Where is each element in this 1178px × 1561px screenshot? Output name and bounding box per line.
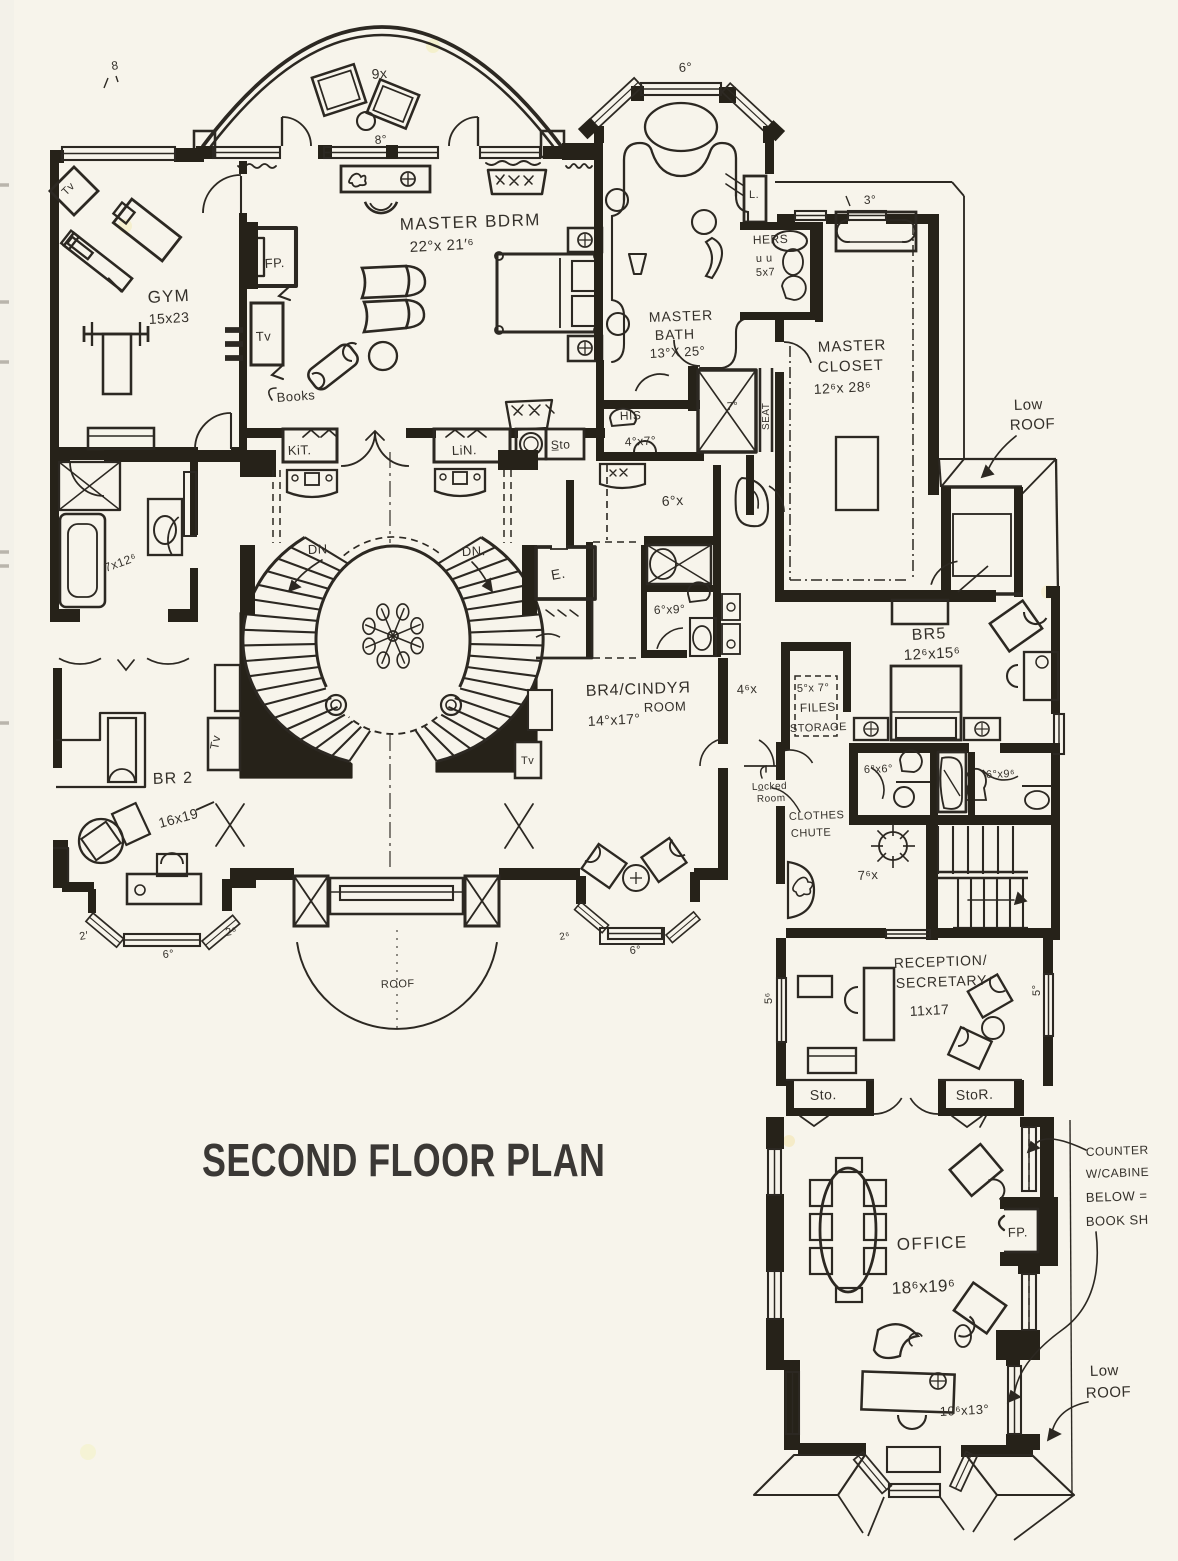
svg-text:FP.: FP. [264, 255, 285, 271]
svg-text:2⁶: 2⁶ [559, 930, 571, 943]
svg-text:u u: u u [756, 252, 773, 265]
svg-text:FILES: FILES [800, 700, 836, 715]
svg-text:L.: L. [749, 189, 759, 201]
svg-text:5x7: 5x7 [756, 266, 776, 279]
svg-text:KiT.: KiT. [288, 442, 312, 458]
svg-text:Low: Low [1014, 396, 1044, 414]
svg-text:6°x: 6°x [661, 492, 684, 509]
svg-text:Low: Low [1090, 1362, 1120, 1380]
svg-text:Tv: Tv [207, 734, 223, 751]
svg-text:2⁶: 2⁶ [224, 925, 238, 939]
svg-text:15x23: 15x23 [148, 309, 189, 327]
svg-text:DN.: DN. [462, 543, 486, 559]
svg-text:BR5: BR5 [911, 625, 947, 644]
svg-text:12⁶x15⁶: 12⁶x15⁶ [903, 644, 961, 664]
svg-text:GYM: GYM [147, 286, 190, 307]
svg-text:HERS: HERS [753, 232, 789, 247]
svg-text:10⁶x13°: 10⁶x13° [939, 1401, 989, 1419]
svg-text:MASTER: MASTER [818, 337, 887, 356]
svg-text:W/CABINE: W/CABINE [1086, 1165, 1150, 1181]
svg-text:BR 2: BR 2 [153, 770, 194, 788]
svg-text:OFFICE: OFFICE [896, 1233, 967, 1254]
svg-text:4⁶x: 4⁶x [736, 681, 757, 697]
svg-text:7°: 7° [727, 400, 739, 413]
svg-text:22°x 21′⁶: 22°x 21′⁶ [409, 236, 474, 256]
svg-text:LiN.: LiN. [452, 442, 478, 458]
svg-text:BATH: BATH [655, 326, 696, 343]
svg-text:CHUTE: CHUTE [791, 827, 832, 840]
svg-text:Sto.: Sto. [810, 1086, 837, 1103]
svg-text:6°: 6° [678, 59, 692, 75]
svg-text:BOOK SH: BOOK SH [1086, 1212, 1149, 1229]
svg-text:6°: 6° [629, 944, 642, 957]
svg-text:RECEPTION/: RECEPTION/ [894, 952, 988, 971]
svg-text:9x: 9x [371, 65, 388, 82]
svg-text:5°x 7°: 5°x 7° [797, 682, 830, 695]
svg-text:CLOTHES: CLOTHES [789, 809, 845, 823]
svg-text:SEAT: SEAT [761, 403, 772, 430]
svg-text:S̲to: S̲to [551, 437, 571, 452]
svg-text:STORAGE: STORAGE [790, 721, 847, 735]
svg-text:8°: 8° [374, 132, 387, 147]
svg-text:Tv: Tv [521, 755, 534, 767]
svg-text:5°: 5° [1031, 984, 1043, 996]
svg-text:ROOF: ROOF [381, 978, 415, 991]
svg-text:18⁶x19⁶: 18⁶x19⁶ [891, 1276, 956, 1298]
svg-text:FP.: FP. [1008, 1224, 1029, 1240]
svg-text:ROOM: ROOM [644, 699, 687, 715]
svg-text:12⁶x 28⁶: 12⁶x 28⁶ [813, 378, 871, 397]
svg-text:Room: Room [757, 793, 786, 805]
svg-text:14°x17°: 14°x17° [587, 710, 641, 729]
svg-text:StoR.: StoR. [956, 1086, 994, 1103]
svg-text:Tv: Tv [256, 328, 272, 344]
svg-text:3°: 3° [864, 193, 877, 207]
svg-text:BELOW =: BELOW = [1086, 1188, 1148, 1205]
svg-text:MASTER: MASTER [649, 307, 714, 325]
svg-text:5⁶: 5⁶ [763, 992, 775, 1004]
svg-text:6°x9°: 6°x9° [654, 602, 686, 617]
svg-text:7⁶x: 7⁶x [857, 867, 878, 883]
svg-text:6°: 6° [162, 948, 175, 961]
svg-text:SECOND FLOOR PLAN: SECOND FLOOR PLAN [202, 1135, 605, 1186]
svg-text:ROOF: ROOF [1010, 415, 1056, 434]
svg-text:E.: E. [550, 565, 567, 583]
svg-text:CLOSET: CLOSET [818, 357, 885, 376]
svg-text:DN.: DN. [308, 541, 332, 557]
svg-text:Books: Books [276, 387, 316, 405]
svg-text:11x17: 11x17 [909, 1001, 949, 1019]
svg-text:COUNTER: COUNTER [1086, 1143, 1149, 1159]
svg-text:ROOF: ROOF [1086, 1383, 1132, 1402]
